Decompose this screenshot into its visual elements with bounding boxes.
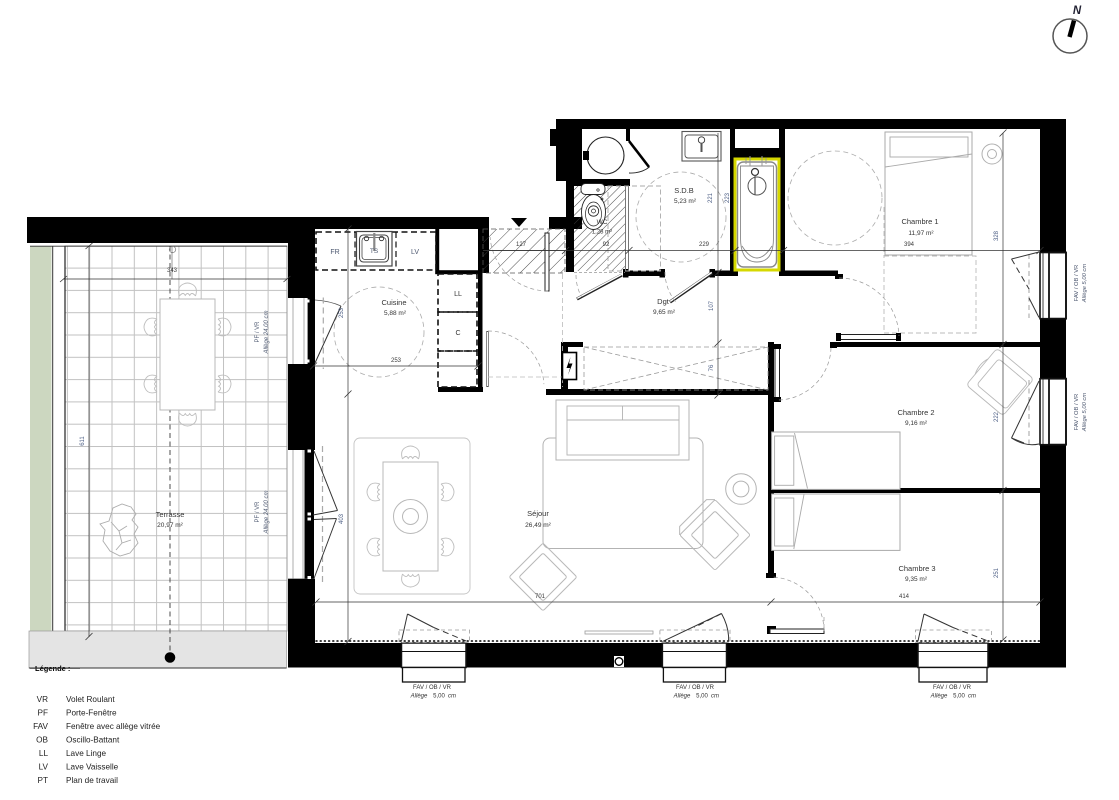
svg-text:VR: VR bbox=[37, 695, 48, 704]
svg-text:Cuisine: Cuisine bbox=[381, 298, 406, 307]
svg-text:FR: FR bbox=[330, 249, 339, 256]
svg-text:76: 76 bbox=[709, 364, 715, 371]
svg-text:Terrasse: Terrasse bbox=[156, 510, 185, 519]
svg-text:Oscillo-Battant: Oscillo-Battant bbox=[66, 736, 120, 745]
svg-text:611: 611 bbox=[80, 436, 86, 446]
svg-text:343: 343 bbox=[167, 268, 178, 274]
svg-text:cm: cm bbox=[448, 694, 456, 700]
svg-text:222: 222 bbox=[994, 411, 1000, 422]
svg-text:Volet Roulant: Volet Roulant bbox=[66, 695, 115, 704]
svg-text:LL: LL bbox=[39, 749, 49, 758]
svg-text:403: 403 bbox=[339, 513, 345, 524]
svg-text:LV: LV bbox=[411, 249, 419, 256]
svg-text:Allège: Allège bbox=[930, 694, 948, 700]
svg-text:Porte-Fenêtre: Porte-Fenêtre bbox=[66, 709, 117, 718]
svg-text:221: 221 bbox=[708, 192, 714, 203]
svg-text:127: 127 bbox=[516, 242, 527, 248]
svg-text:251: 251 bbox=[994, 567, 1000, 578]
svg-text:Chambre 2: Chambre 2 bbox=[897, 408, 934, 417]
svg-text:PT: PT bbox=[38, 776, 48, 785]
svg-text:92: 92 bbox=[603, 242, 610, 248]
svg-text:253: 253 bbox=[391, 358, 402, 364]
svg-text:FAV: FAV bbox=[33, 722, 48, 731]
svg-text:OB: OB bbox=[36, 736, 48, 745]
svg-text:TS: TS bbox=[370, 248, 379, 255]
svg-text:Lave Vaisselle: Lave Vaisselle bbox=[66, 763, 119, 772]
svg-text:FAV / OB / VR: FAV / OB / VR bbox=[933, 685, 972, 691]
svg-text:Allège 24,00 cm: Allège 24,00 cm bbox=[264, 310, 270, 354]
svg-text:9,65 m²: 9,65 m² bbox=[653, 309, 676, 316]
svg-text:Séjour: Séjour bbox=[527, 509, 549, 518]
svg-text:253: 253 bbox=[339, 307, 345, 318]
svg-text:Chambre 3: Chambre 3 bbox=[898, 564, 935, 573]
svg-text:Allège: Allège bbox=[673, 694, 691, 700]
svg-text:Allège 5,00 cm: Allège 5,00 cm bbox=[1082, 393, 1088, 433]
svg-text:PF: PF bbox=[38, 709, 48, 718]
svg-text:11,97 m²: 11,97 m² bbox=[908, 230, 934, 237]
svg-text:Fenêtre avec allège vitrée: Fenêtre avec allège vitrée bbox=[66, 722, 161, 731]
svg-text:5,88 m²: 5,88 m² bbox=[384, 310, 407, 317]
svg-text:9,16 m²: 9,16 m² bbox=[905, 420, 928, 427]
svg-text:5,00: 5,00 bbox=[433, 694, 445, 700]
svg-text:cm: cm bbox=[968, 694, 976, 700]
svg-text:FAV / OB / VR: FAV / OB / VR bbox=[413, 685, 452, 691]
svg-text:WC: WC bbox=[597, 219, 608, 226]
svg-text:414: 414 bbox=[899, 594, 910, 600]
svg-text:LV: LV bbox=[39, 763, 49, 772]
svg-text:5,23 m²: 5,23 m² bbox=[674, 198, 697, 205]
svg-text:5,00: 5,00 bbox=[953, 694, 965, 700]
svg-text:LL: LL bbox=[454, 291, 462, 298]
svg-text:9,35 m²: 9,35 m² bbox=[905, 576, 928, 583]
svg-text:20,97 m²: 20,97 m² bbox=[157, 522, 183, 529]
svg-text:701: 701 bbox=[535, 594, 546, 600]
svg-text:FAV / OB / VR: FAV / OB / VR bbox=[676, 685, 715, 691]
svg-text:C: C bbox=[455, 330, 460, 337]
svg-text:cm: cm bbox=[711, 694, 719, 700]
svg-text:26,49 m²: 26,49 m² bbox=[525, 522, 551, 529]
svg-text:223: 223 bbox=[725, 192, 731, 203]
svg-text:PF / VR: PF / VR bbox=[255, 321, 261, 343]
svg-text:Chambre 1: Chambre 1 bbox=[901, 217, 938, 226]
svg-text:Allège 24,00 cm: Allège 24,00 cm bbox=[264, 490, 270, 534]
svg-text:Allège 5,00 cm: Allège 5,00 cm bbox=[1082, 264, 1088, 304]
svg-text:107: 107 bbox=[709, 300, 715, 311]
svg-text:Allège: Allège bbox=[410, 694, 428, 700]
svg-text:229: 229 bbox=[699, 242, 710, 248]
svg-text:Dgt: Dgt bbox=[657, 297, 670, 306]
svg-text:328: 328 bbox=[994, 230, 1000, 241]
svg-text:394: 394 bbox=[904, 242, 915, 248]
svg-text:Plan de travail: Plan de travail bbox=[66, 776, 118, 785]
svg-text:FAV / OB / VR: FAV / OB / VR bbox=[1074, 394, 1080, 431]
svg-text:FAV / OB / VR: FAV / OB / VR bbox=[1074, 265, 1080, 302]
svg-text:N: N bbox=[1073, 5, 1082, 17]
svg-text:PF / VR: PF / VR bbox=[255, 501, 261, 523]
svg-text:1,28 m²: 1,28 m² bbox=[592, 230, 612, 236]
svg-text:5,00: 5,00 bbox=[696, 694, 708, 700]
svg-text:Lave Linge: Lave Linge bbox=[66, 749, 107, 758]
svg-text:S.D.B: S.D.B bbox=[674, 186, 694, 195]
